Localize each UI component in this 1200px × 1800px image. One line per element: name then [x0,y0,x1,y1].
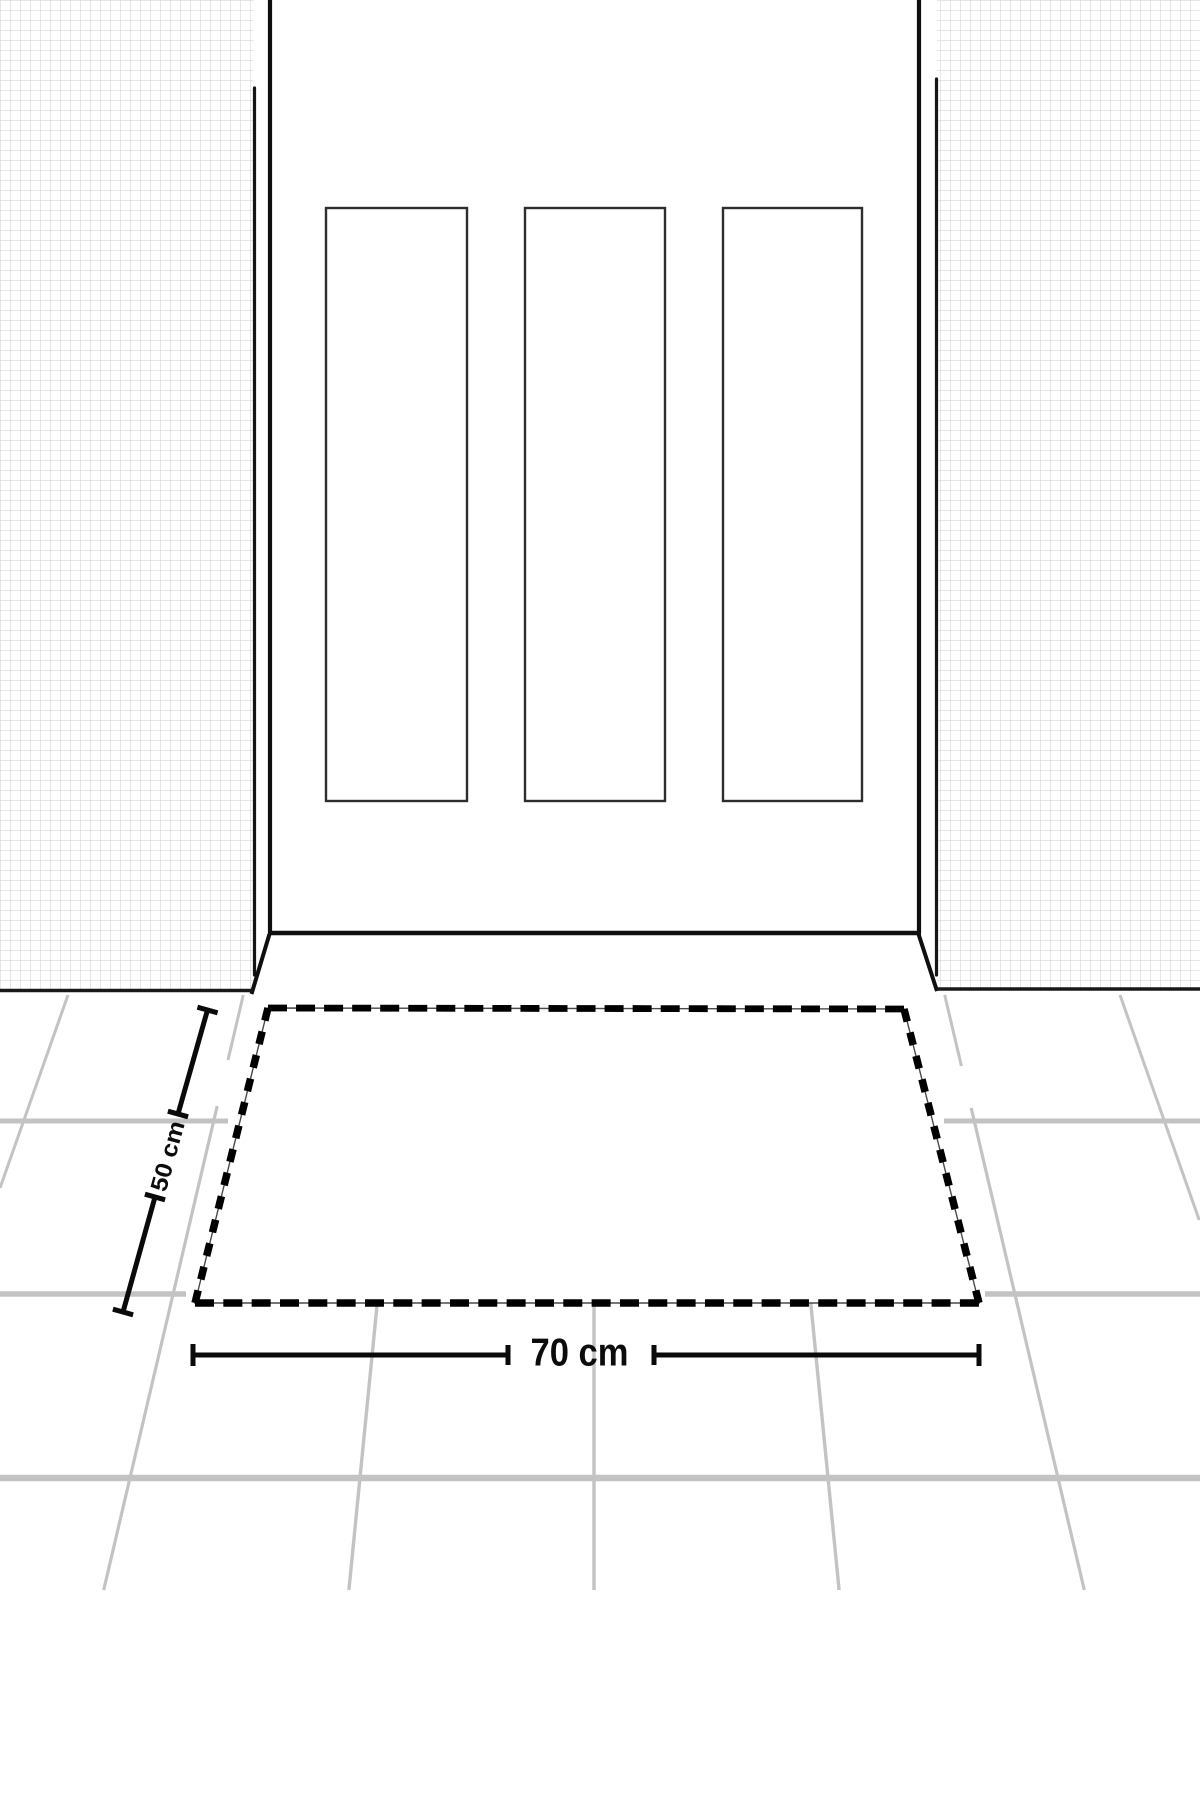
svg-text:70 cm: 70 cm [531,1332,629,1375]
